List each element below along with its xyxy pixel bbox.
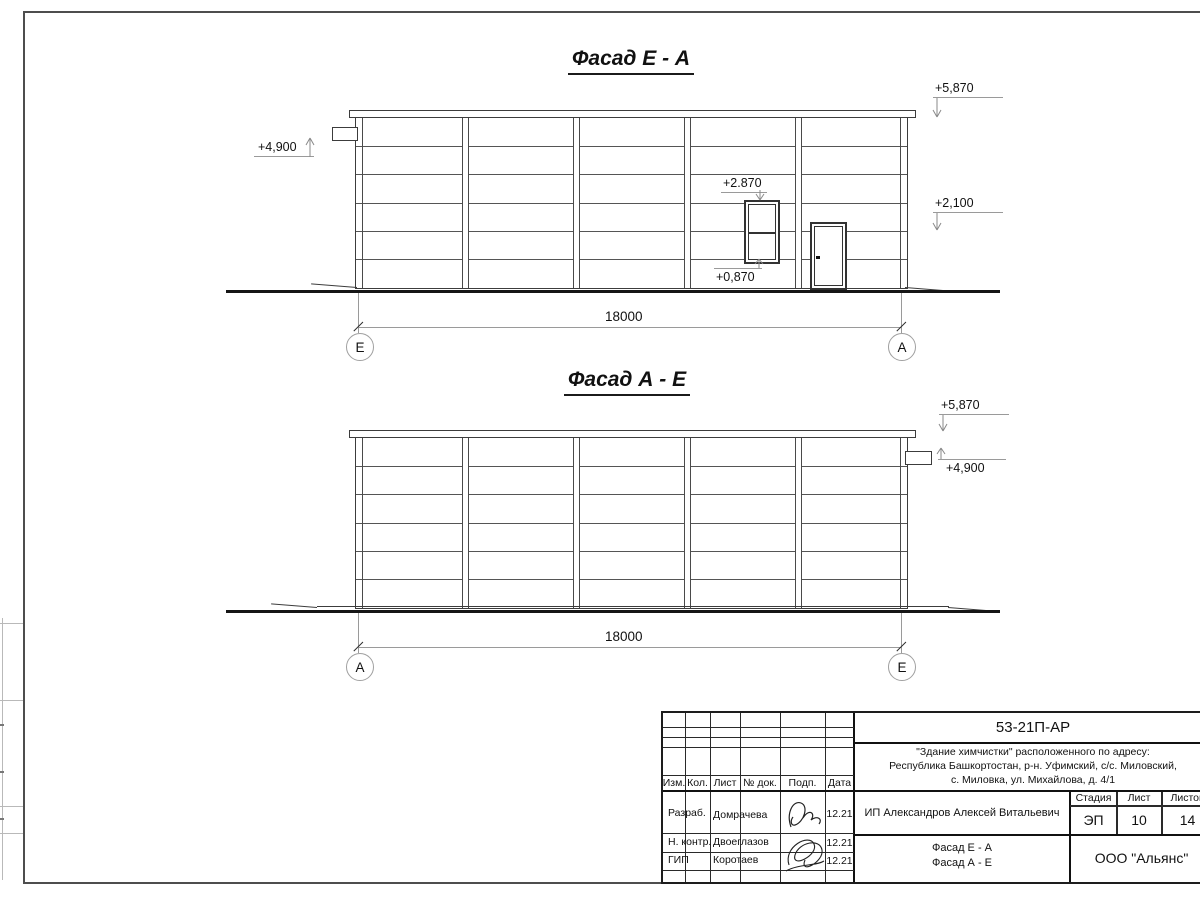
elevation-arrow-up-icon	[303, 136, 317, 158]
elevation-mark-2870: +2.870	[723, 176, 762, 190]
elevation-arrow-down-icon	[930, 212, 944, 232]
elevation-mark-4900: +4,900	[946, 461, 985, 475]
facade1-edge-column-line	[362, 118, 363, 288]
title-block-line	[663, 737, 854, 738]
facade1-door-handle	[816, 256, 820, 259]
stage-value: ЭП	[1071, 806, 1116, 833]
side-stamp-text-fragment	[0, 771, 4, 773]
title-block-line	[663, 727, 854, 728]
facade2-canopy-pipe	[905, 451, 932, 465]
dimension-line	[358, 327, 902, 328]
client-name: ИП Александров Алексей Витальевич	[855, 792, 1069, 834]
col-header-list: Лист	[710, 775, 740, 790]
axis-marker-left: Е	[346, 333, 374, 361]
facade2-column	[573, 438, 580, 608]
facade1-window	[744, 200, 780, 264]
side-stamp-line	[0, 700, 23, 701]
facade2-title: Фасад А - Е	[564, 368, 690, 396]
side-stamp-text-fragment	[0, 818, 4, 820]
row-date: 12.21	[825, 806, 854, 821]
elevation-arrow-down-icon	[930, 97, 944, 119]
facade2-apron-line	[317, 606, 949, 607]
facade2-column	[462, 438, 469, 608]
title-block-line	[854, 742, 1200, 744]
facade2-column	[684, 438, 691, 608]
elevation-mark-shelf	[933, 212, 1003, 213]
list-label: Лист	[1117, 791, 1161, 805]
drawing-title-line2: Фасад А - Е	[855, 857, 1069, 869]
facade1-edge-column-line	[900, 118, 901, 288]
listov-label: Листов	[1163, 791, 1200, 805]
side-stamp-line	[0, 833, 23, 834]
facade1-door	[810, 222, 847, 290]
title-block-line	[663, 790, 854, 792]
facade1-column	[462, 118, 469, 288]
col-header-kol: Кол.	[685, 775, 710, 790]
drawing-title-line1: Фасад Е - А	[855, 842, 1069, 854]
project-address-line3: с. Миловка, ул. Михайлова, д. 4/1	[854, 774, 1200, 786]
facade1-column	[684, 118, 691, 288]
side-stamp-line	[2, 618, 3, 880]
axis-marker-right: А	[888, 333, 916, 361]
row-role: Разраб.	[668, 807, 706, 819]
elevation-mark-2100: +2,100	[935, 196, 974, 210]
project-address-line1: "Здание химчистки" расположенного по адр…	[854, 746, 1200, 758]
row-date: 12.21	[825, 853, 854, 868]
dimension-line	[358, 647, 902, 648]
facade1-column	[573, 118, 580, 288]
side-stamp-text-fragment	[0, 724, 4, 726]
axis-marker-right: Е	[888, 653, 916, 681]
col-header-doc: № док.	[740, 775, 780, 790]
facade1-window-divider	[748, 232, 776, 234]
facade1-title: Фасад Е - А	[568, 47, 694, 75]
facade1-canopy-pipe	[332, 127, 358, 141]
row-name: Двоеглазов	[713, 836, 769, 848]
title-block-line	[710, 713, 711, 882]
elevation-arrow-down-icon	[753, 190, 767, 202]
elevation-mark-shelf	[933, 97, 1003, 98]
row-date: 12.21	[825, 835, 854, 850]
elevation-mark-4900: +4,900	[258, 140, 297, 154]
facade1-ground-line	[226, 290, 1000, 293]
stage-label: Стадия	[1071, 791, 1116, 805]
listov-value: 14	[1163, 806, 1200, 833]
side-stamp-line	[0, 806, 23, 807]
elevation-arrow-up-icon	[752, 258, 766, 269]
organization-name: ООО "Альянс"	[1071, 836, 1200, 880]
project-address-line2: Республика Башкортостан, р-н. Уфимский, …	[854, 760, 1200, 772]
elevation-mark-5870: +5,870	[941, 398, 980, 412]
col-header-podp: Подп.	[780, 775, 825, 790]
list-value: 10	[1117, 806, 1161, 833]
row-role: Н. контр.	[668, 836, 711, 848]
doc-number: 53-21П-АР	[854, 713, 1200, 742]
facade1-dimension-text: 18000	[605, 309, 643, 324]
facade2-edge-column-line	[900, 438, 901, 608]
col-header-data: Дата	[825, 775, 854, 790]
elevation-mark-0870: +0,870	[716, 270, 755, 284]
facade2-column	[795, 438, 802, 608]
elevation-mark-5870: +5,870	[935, 81, 974, 95]
facade1-column	[795, 118, 802, 288]
elevation-mark-shelf	[939, 414, 1009, 415]
facade2-edge-column-line	[362, 438, 363, 608]
col-header-izm: Изм.	[663, 775, 685, 790]
elevation-mark-shelf	[938, 459, 1006, 460]
drawing-sheet: Фасад Е - А +4,900 +5,870 +2,100 +2.870	[0, 0, 1200, 900]
title-block: Изм. Кол. Лист № док. Подп. Дата Разраб.…	[661, 711, 1200, 884]
axis-marker-left: А	[346, 653, 374, 681]
side-stamp-line	[0, 623, 23, 624]
elevation-arrow-down-icon	[936, 414, 950, 433]
row-role: ГИП	[668, 854, 689, 866]
signature-icon	[779, 825, 829, 879]
row-name: Коротаев	[713, 854, 758, 866]
facade2-dimension-text: 18000	[605, 629, 643, 644]
row-name: Домрачева	[713, 809, 767, 821]
facade2-ground-line	[226, 610, 1000, 613]
facade2-wall	[355, 437, 908, 609]
title-block-line	[663, 747, 854, 748]
